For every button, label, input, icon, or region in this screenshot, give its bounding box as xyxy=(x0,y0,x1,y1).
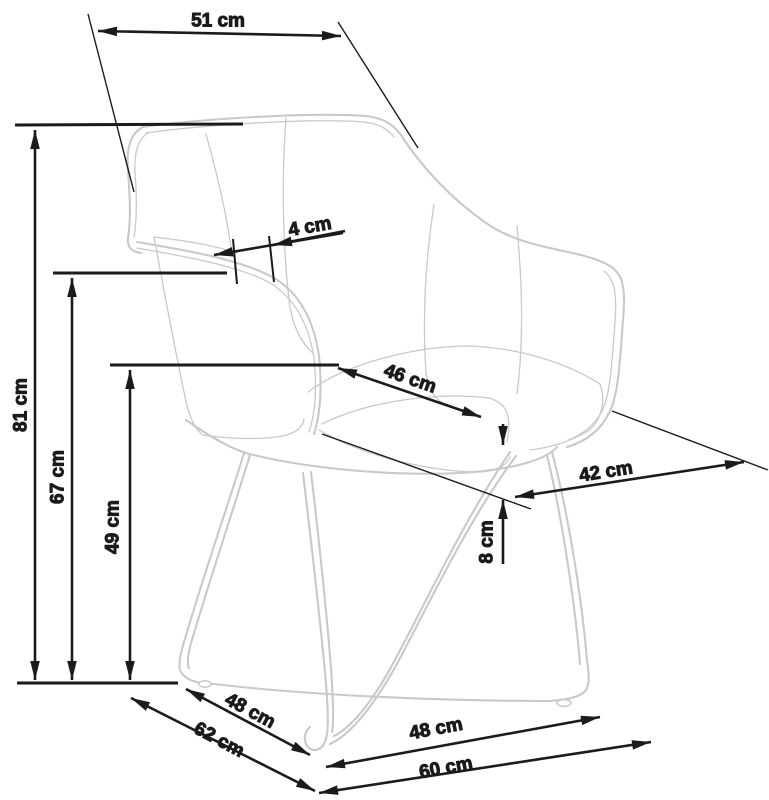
dim-base-depth: 62 cm xyxy=(131,698,315,791)
dim-label-back-width: 51 cm xyxy=(191,11,245,32)
diagram-canvas: 51 cm 81 cm 67 cm 49 cm 4 cm 46 cm xyxy=(0,0,769,800)
seat-seam xyxy=(322,396,509,442)
dim-seat-depth: 46 cm xyxy=(338,360,481,417)
dim-base-width: 60 cm xyxy=(319,742,651,793)
left-armrest-outer-inner xyxy=(137,248,316,432)
chair-dimension-diagram: 51 cm 81 cm 67 cm 49 cm 4 cm 46 cm xyxy=(0,0,769,800)
dim-armrest-gap: 4 cm xyxy=(214,213,345,284)
dim-label-base-depth: 62 cm xyxy=(190,718,247,762)
dim-label-cushion-thickness: 8 cm xyxy=(477,520,498,563)
base-floor-rail xyxy=(206,661,589,701)
dim-label-seat-height: 49 cm xyxy=(103,500,124,554)
backrest-left-edge xyxy=(128,127,143,253)
ext-line-seat-front-left xyxy=(322,434,531,509)
seat-front-edge xyxy=(319,430,510,472)
backrest-seam-1 xyxy=(206,134,231,248)
backrest-left-edge-inner xyxy=(134,133,148,237)
left-armrest-pad-top xyxy=(154,237,237,253)
foot-glide-left xyxy=(199,681,211,687)
dim-label-base-width: 60 cm xyxy=(418,753,475,783)
base-left-leg-inner xyxy=(188,455,250,668)
dim-label-armrest-height: 67 cm xyxy=(48,450,69,504)
chair-drawing xyxy=(128,115,624,750)
dim-total-height: 81 cm xyxy=(11,130,36,680)
dim-seat-front-width: 42 cm xyxy=(322,411,768,509)
ref-line-top xyxy=(15,124,243,125)
dim-back-width: 51 cm xyxy=(88,11,418,193)
wing-seam-2 xyxy=(517,226,522,394)
ext-line-back-width-right xyxy=(338,22,418,148)
dim-label-total-height: 81 cm xyxy=(11,378,32,432)
foot-glide-right xyxy=(557,700,571,707)
dim-line-back-width xyxy=(98,31,341,36)
left-armrest-outer xyxy=(137,242,321,434)
dim-line-base-width xyxy=(319,742,651,793)
ext-line-seat-front-right xyxy=(612,411,768,470)
dim-armrest-height: 67 cm xyxy=(48,278,73,680)
seat-right-edge xyxy=(530,384,603,450)
ext-line-back-width-left xyxy=(88,14,134,192)
base-riser-inner xyxy=(334,452,510,736)
dim-label-seat-front-width: 42 cm xyxy=(578,457,634,486)
dim-label-base-inner-depth: 48 cm xyxy=(221,689,278,733)
dim-label-base-inner-width: 48 cm xyxy=(408,714,465,744)
dim-seat-height: 49 cm xyxy=(103,370,131,680)
seat-top-edge xyxy=(308,346,600,392)
